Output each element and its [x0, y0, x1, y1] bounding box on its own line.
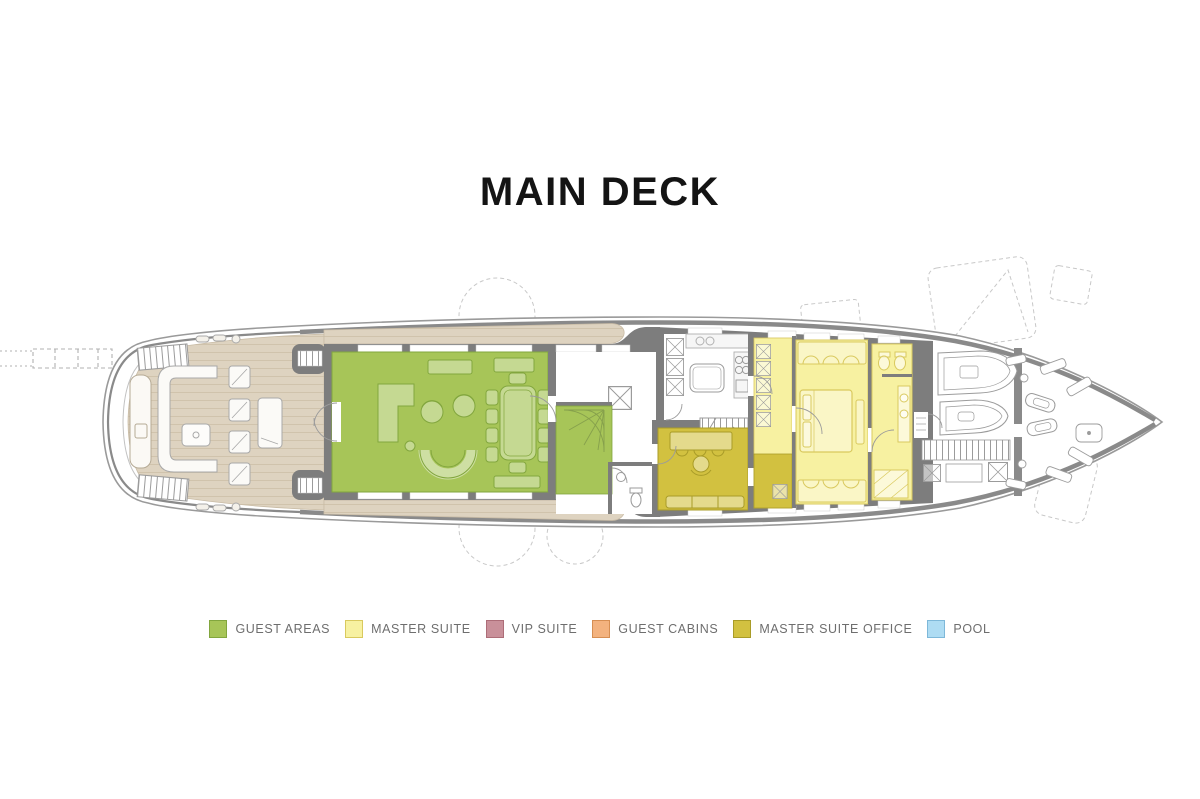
wardrobe-bottom — [798, 480, 866, 502]
corridor-office-wall — [652, 420, 658, 514]
pillow — [803, 422, 811, 447]
lounge-chair — [453, 395, 475, 417]
legend-label: GUEST CABINS — [618, 622, 718, 636]
toilet — [631, 493, 641, 507]
toilet-cistern — [630, 488, 642, 493]
main-salon — [332, 352, 556, 492]
basin — [900, 394, 908, 402]
basin — [900, 410, 908, 418]
closet — [756, 395, 770, 409]
legend-label: MASTER SUITE — [371, 622, 471, 636]
sideboard — [428, 360, 472, 374]
bath-wall-left — [868, 340, 872, 504]
roof-stair-starboard-treads — [298, 478, 322, 493]
master-suite-office — [652, 420, 748, 514]
legend-item-master-suite: MASTER SUITE — [345, 620, 471, 638]
legend-label: POOL — [953, 622, 990, 636]
galley-island — [690, 364, 724, 392]
legend-label: MASTER SUITE OFFICE — [759, 622, 912, 636]
deck-locker — [923, 464, 940, 481]
galley-office-wall — [656, 420, 700, 428]
sun-lounger — [258, 398, 282, 448]
closet — [756, 344, 770, 358]
legend: GUEST AREAS MASTER SUITE VIP SUITE GUEST… — [0, 620, 1200, 638]
roof-stair-port-treads — [298, 351, 322, 366]
legend-swatch — [209, 620, 227, 638]
foot-bench — [856, 400, 864, 444]
deck-locker — [989, 463, 1008, 482]
legend-swatch — [927, 620, 945, 638]
side-table — [405, 441, 415, 451]
pillow — [803, 395, 811, 420]
legend-label: GUEST AREAS — [235, 622, 330, 636]
stern-stairs-starboard — [137, 475, 189, 501]
service-cabinet — [494, 476, 540, 488]
lounge-chair — [421, 401, 443, 423]
crane-mast-outline — [955, 270, 1028, 336]
day-head-wall-top — [608, 462, 656, 466]
day-head-wall-left — [608, 466, 612, 514]
wardrobe-top — [798, 342, 866, 364]
legend-swatch — [733, 620, 751, 638]
office-desk — [670, 432, 732, 450]
dressing-corridor — [748, 332, 792, 512]
legend-label: VIP SUITE — [512, 622, 578, 636]
foredeck-door-gap — [914, 412, 928, 438]
legend-item-pool: POOL — [927, 620, 990, 638]
legend-item-vip-suite: VIP SUITE — [486, 620, 578, 638]
foyer-top-wall — [556, 402, 612, 406]
bidet — [895, 356, 906, 370]
master-suite — [792, 336, 868, 508]
salon-aft-door-gap — [332, 402, 341, 442]
wc-partition — [882, 374, 912, 377]
legend-swatch — [592, 620, 610, 638]
legend-item-guest-cabins: GUEST CABINS — [592, 620, 718, 638]
coffee-table — [182, 424, 210, 446]
foredeck-bulkhead-door-gap — [1014, 424, 1022, 437]
buffet-cabinet — [494, 358, 534, 372]
closet — [756, 378, 770, 392]
freezer — [666, 358, 683, 375]
legend-item-master-suite-office: MASTER SUITE OFFICE — [733, 620, 912, 638]
davit-outline-small — [1049, 265, 1092, 305]
legend-swatch — [486, 620, 504, 638]
legend-item-guest-areas: GUEST AREAS — [209, 620, 330, 638]
office-lobby-floor — [754, 454, 792, 508]
yacht-floor-plan — [0, 0, 1200, 799]
closet — [756, 412, 770, 426]
galley — [664, 334, 750, 420]
salon-door-gap — [548, 396, 556, 422]
fridge — [666, 338, 683, 355]
dining-table — [500, 386, 536, 460]
office-sofa — [666, 496, 744, 508]
closet — [756, 361, 770, 375]
legend-swatch — [345, 620, 363, 638]
office-chair — [693, 456, 709, 472]
gangway — [0, 349, 112, 368]
transom-locker — [130, 375, 151, 468]
pantry-unit — [666, 378, 683, 395]
foyer-area — [556, 352, 656, 514]
toilet — [879, 356, 890, 370]
page: MAIN DECK — [0, 0, 1200, 799]
locker — [773, 484, 787, 498]
